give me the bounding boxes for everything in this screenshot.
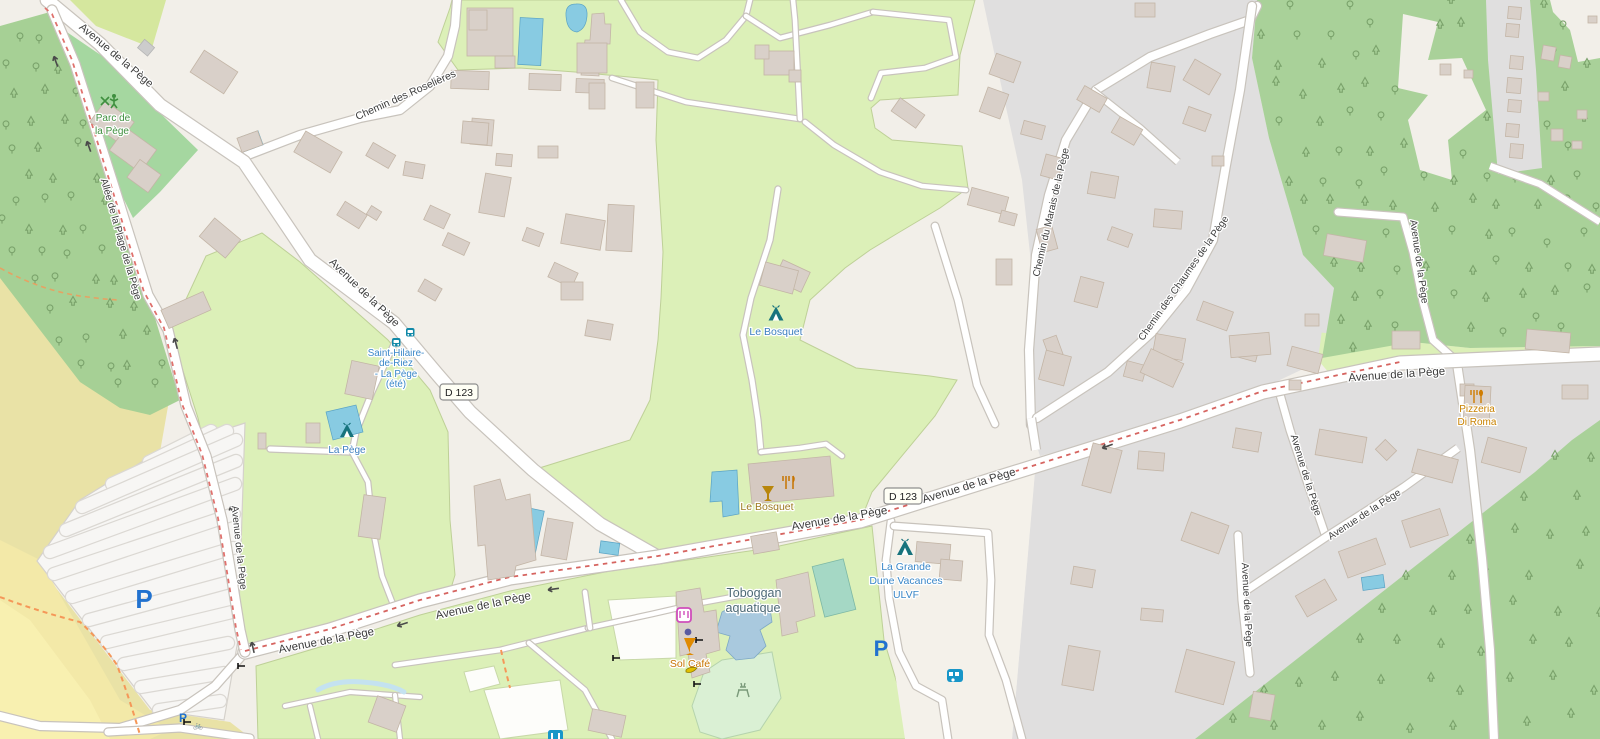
svg-text:Di Roma: Di Roma <box>1458 417 1497 428</box>
svg-text:(été): (été) <box>386 379 406 390</box>
svg-text:Dune Vacances: Dune Vacances <box>869 575 942 587</box>
svg-text:D 123: D 123 <box>889 491 917 503</box>
svg-text:Le Bosquet: Le Bosquet <box>749 326 802 338</box>
svg-text:La Grande: La Grande <box>881 561 931 573</box>
svg-text:La Pège: La Pège <box>328 445 366 456</box>
svg-text:P: P <box>135 584 152 614</box>
svg-text:aquatique: aquatique <box>726 601 781 615</box>
svg-text:Le Bosquet: Le Bosquet <box>740 501 793 513</box>
svg-text:🚲: 🚲 <box>193 721 203 730</box>
svg-text:ULVF: ULVF <box>893 589 919 601</box>
svg-text:P: P <box>874 636 889 661</box>
svg-text:la Pège: la Pège <box>95 126 129 137</box>
svg-text:de-Riez: de-Riez <box>379 358 413 369</box>
svg-text:Pizzeria: Pizzeria <box>1459 404 1495 415</box>
svg-text:D 123: D 123 <box>445 387 473 399</box>
svg-text:Parc de: Parc de <box>96 113 131 124</box>
svg-text:P: P <box>179 711 187 725</box>
svg-text:Toboggan: Toboggan <box>727 586 782 600</box>
